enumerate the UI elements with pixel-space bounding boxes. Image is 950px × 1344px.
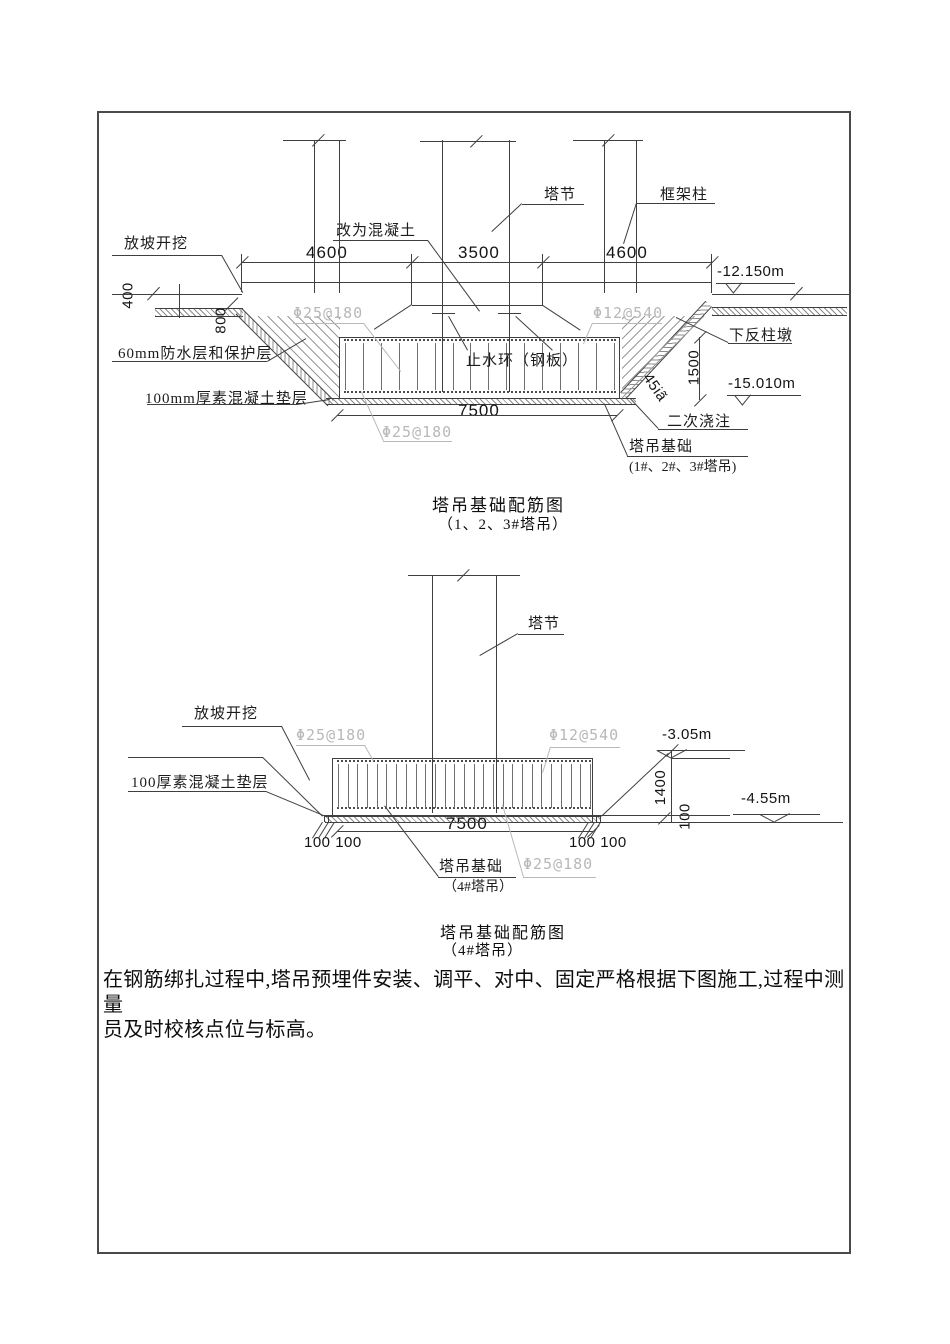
drawing-line [498, 313, 521, 314]
drawing-line [672, 758, 730, 759]
drawing-line [337, 831, 593, 832]
drawing-line [551, 747, 620, 748]
drawing-line [314, 140, 315, 293]
drawing-line [596, 815, 597, 822]
dim-1400: 1400 [652, 769, 669, 806]
drawing-line [112, 361, 267, 362]
stirrup-line [493, 764, 494, 808]
stirrup-line [532, 764, 533, 808]
stirrup-line [367, 764, 368, 808]
rebar-label-bottom-d2: Φ25@180 [523, 855, 593, 873]
drawing-line [339, 337, 340, 398]
label-waterstop-ring: 止水环（钢板） [466, 349, 578, 370]
dim-100: 100 [677, 803, 694, 831]
stirrup-line [425, 764, 426, 808]
drawing-line [340, 398, 620, 399]
drawing-line [128, 791, 266, 792]
drawing-line [600, 815, 601, 822]
drawing-line [523, 877, 596, 878]
stirrup-line [503, 764, 504, 808]
waterproof-strip-right [712, 307, 847, 316]
dim-3500: 3500 [458, 243, 500, 263]
drawing-line [727, 395, 801, 396]
drawing-line [604, 140, 605, 293]
stirrup-line [377, 764, 378, 808]
drawing-line [619, 337, 620, 398]
label-slope-excavation-d1: 放坡开挖 [124, 232, 188, 253]
stirrup-line [596, 343, 597, 390]
label-frame-column: 框架柱 [660, 183, 708, 204]
label-foundation-tag-d2: （4#塔吊） [443, 876, 513, 896]
stirrup-line [580, 764, 581, 808]
stirrup-line [406, 764, 407, 808]
drawing-line [592, 758, 593, 815]
dim-400: 400 [120, 279, 137, 313]
drawing-line [328, 815, 329, 822]
label-down-pier: 下反柱墩 [729, 324, 793, 345]
label-secondary-pour: 二次浇注 [667, 410, 731, 431]
stirrup-line [417, 343, 418, 390]
drawing-line [658, 429, 748, 430]
drawing-line [112, 255, 222, 256]
stirrup-line [512, 764, 513, 808]
drawing-line [324, 815, 325, 822]
stirrup-line [435, 343, 436, 390]
drawing-line [733, 814, 820, 815]
stirrup-line [578, 343, 579, 390]
drawing-line [333, 240, 428, 241]
drawing-line [592, 815, 593, 822]
drawing-line [147, 404, 297, 405]
drawing-line [711, 254, 712, 293]
diagram2-subtitle: （4#塔吊） [442, 939, 523, 960]
drawing-line [412, 305, 543, 306]
rebar-label-top-d2: Φ25@180 [296, 726, 366, 744]
drawing-line [438, 877, 516, 878]
stirrup-line [416, 764, 417, 808]
drawing-line [637, 203, 715, 204]
drawing-line [636, 140, 637, 293]
level-15010: -15.010m [728, 375, 795, 392]
drawing-line [332, 758, 333, 815]
drawing-line [325, 822, 843, 823]
stirrup-line [363, 343, 364, 390]
drawing-line [509, 140, 510, 392]
note-line-2: 员及时校核点位与标高。 [103, 1018, 851, 1043]
drawing-line [128, 757, 263, 758]
drawing-line [112, 294, 242, 295]
drawing-line [383, 441, 452, 442]
drawing-line [712, 294, 849, 295]
stirrup-line [345, 343, 346, 390]
stirrup-line [614, 343, 615, 390]
drawing-line [593, 323, 662, 324]
rebar-dots-bottom-d1 [344, 391, 616, 393]
waterproof-strip-left [155, 308, 243, 317]
stirrup-line [348, 764, 349, 808]
drawing-line [496, 575, 497, 813]
label-waterproof-layer: 60mm防水层和保护层 [118, 342, 272, 363]
dim-4600-right: 4600 [606, 243, 648, 263]
document-page: 放坡开挖 改为混凝土 塔节 框架柱 4600 3500 4600 -12.150… [0, 0, 950, 1344]
stirrup-line [399, 343, 400, 390]
stirrup-line [445, 764, 446, 808]
stirrup-line [435, 764, 436, 808]
drawing-line [728, 343, 792, 344]
stirrup-line [561, 764, 562, 808]
stirrup-line [357, 764, 358, 808]
rebar-dots-top-d2 [337, 760, 591, 762]
drawing-line [242, 262, 712, 263]
level-12150: -12.150m [717, 263, 784, 280]
rebar-dots-top-d1 [344, 339, 616, 341]
label-tower-section-d1: 塔节 [544, 183, 576, 204]
drawing-line [340, 337, 620, 338]
drawing-line [522, 204, 584, 205]
label-blinding-layer-d2: 100厚素混凝土垫层 [131, 771, 269, 792]
stirrup-line [453, 343, 454, 390]
drawing-line [296, 745, 365, 746]
rebar-label-bottom-d1: Φ25@180 [382, 423, 452, 441]
drawing-line [442, 140, 443, 392]
label-slope-excavation-d2: 放坡开挖 [194, 702, 258, 723]
stirrup-line [590, 764, 591, 808]
dim-7500-d1: 7500 [458, 401, 500, 421]
diagram1-subtitle: （1、2、3#塔吊） [438, 513, 568, 534]
level-455: -4.55m [741, 790, 791, 807]
drawing-line [337, 415, 617, 416]
drawing-line [716, 283, 795, 284]
stirrup-line [396, 764, 397, 808]
stirrup-line [381, 343, 382, 390]
label-foundation-tags-d1: (1#、2#、3#塔吊) [629, 456, 736, 476]
rebar-label-top-d1: Φ25@180 [293, 304, 363, 322]
label-foundation-d2: 塔吊基础 [439, 855, 503, 876]
drawing-line [241, 254, 242, 292]
stirrup-line [551, 764, 552, 808]
stirrup-line [571, 764, 572, 808]
dim-4600-left: 4600 [306, 243, 348, 263]
rebar-label-distribution-d1: Φ12@540 [593, 304, 663, 322]
label-tower-section-d2: 塔节 [528, 612, 560, 633]
stirrup-line [483, 764, 484, 808]
stirrup-line [474, 764, 475, 808]
note-paragraph: 在钢筋绑扎过程中,塔吊预埋件安装、调平、对中、固定严格根据下图施工,过程中测量 … [103, 968, 851, 1043]
label-changed-concrete: 改为混凝土 [336, 219, 416, 240]
drawing-line [179, 284, 180, 318]
drawing-line [671, 750, 672, 822]
stirrup-line [454, 764, 455, 808]
drawing-line [339, 140, 340, 293]
stirrup-lines-d2 [338, 764, 591, 808]
level-305: -3.05m [662, 726, 712, 743]
stirrup-line [338, 764, 339, 808]
drawing-line [182, 726, 282, 727]
drawing-line [420, 141, 516, 142]
note-line-1: 在钢筋绑扎过程中,塔吊预埋件安装、调平、对中、固定严格根据下图施工,过程中测量 [103, 968, 851, 1018]
drawing-line [432, 313, 455, 314]
drawing-line [518, 634, 564, 635]
drawing-line [627, 456, 748, 457]
drawing-line [293, 323, 364, 324]
stirrup-line [386, 764, 387, 808]
stirrup-line [464, 764, 465, 808]
drawing-line [325, 815, 730, 816]
rebar-label-distribution-d2: Φ12@540 [549, 726, 619, 744]
stirrup-line [522, 764, 523, 808]
label-foundation-d1: 塔吊基础 [629, 435, 693, 456]
drawing-line [242, 282, 712, 283]
drawing-line [432, 575, 433, 813]
drawing-line [699, 337, 700, 400]
drawing-line [283, 140, 346, 141]
